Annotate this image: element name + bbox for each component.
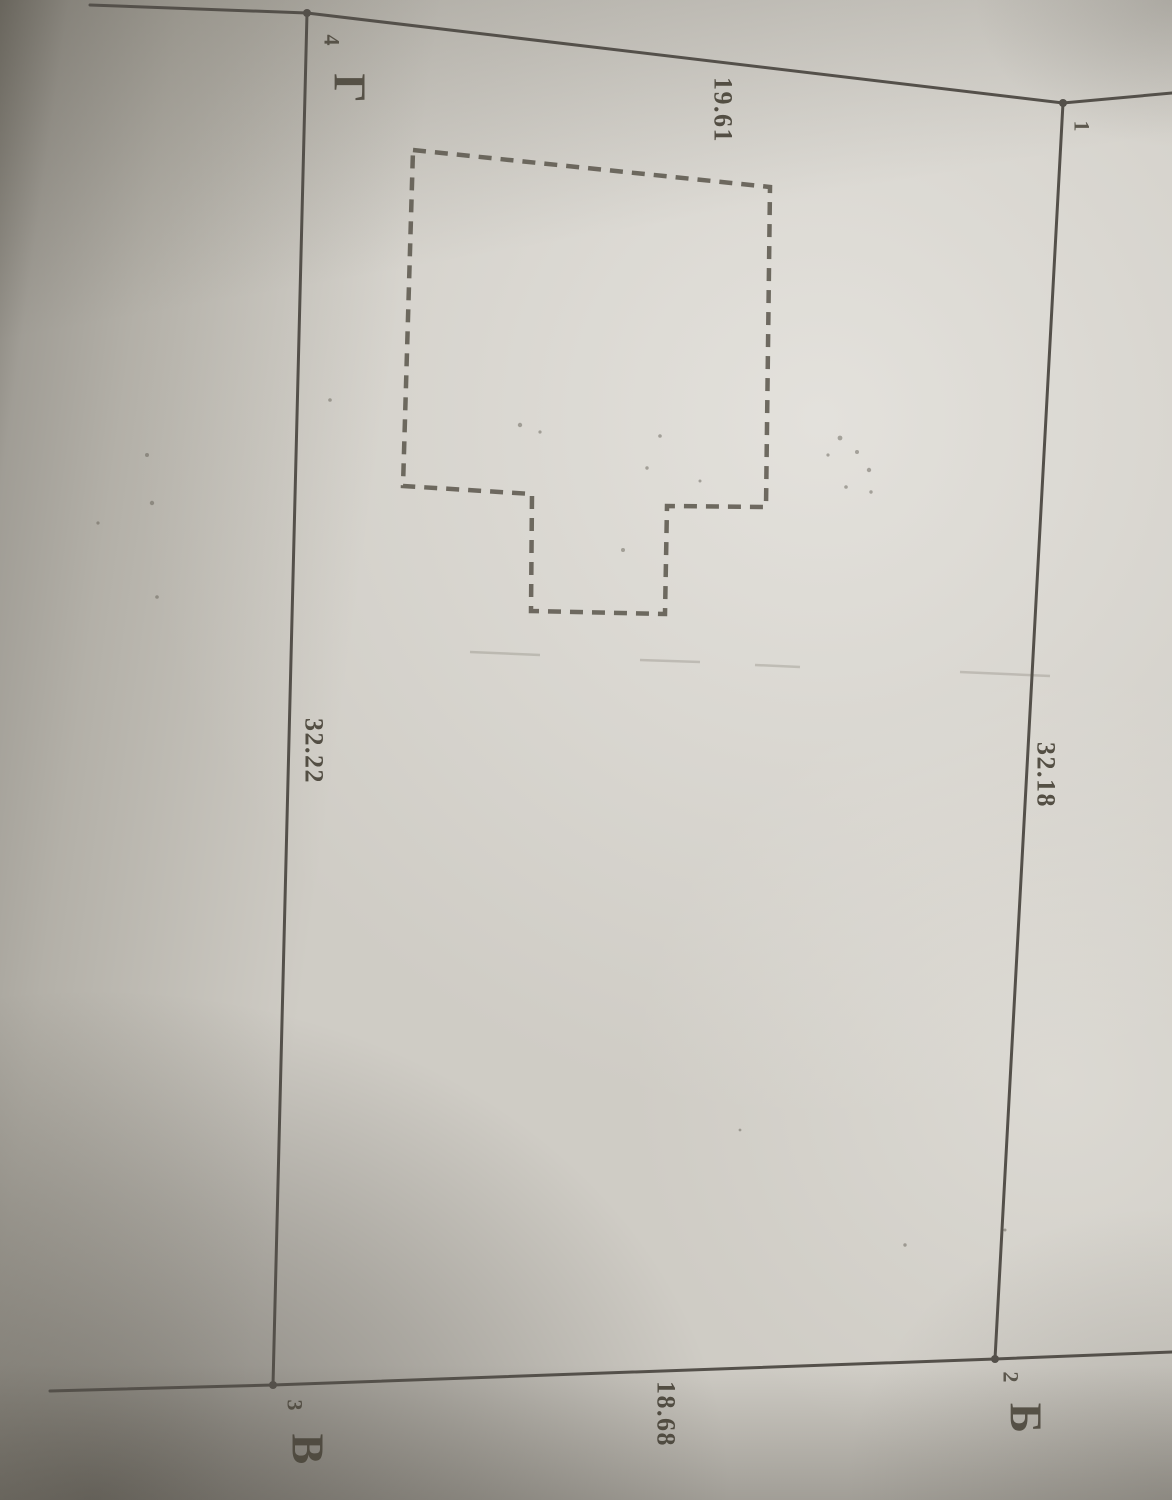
point-number-3: 3 bbox=[283, 1400, 308, 1411]
plot-plan-drawing: 1 2 3 4 Б В Г 19.61 32.18 32.22 18.68 bbox=[0, 0, 1172, 1500]
plan-labels: 1 2 3 4 Б В Г 19.61 32.18 32.22 18.68 bbox=[283, 35, 1095, 1465]
boundary-right-line bbox=[995, 103, 1063, 1359]
paper-crease-marks bbox=[470, 652, 1050, 676]
adjacent-plot-letter-g: Г bbox=[325, 73, 376, 102]
plot-boundary-lines bbox=[50, 5, 1172, 1391]
dimension-left-side: 32.22 bbox=[300, 718, 329, 784]
point-number-1: 1 bbox=[1070, 121, 1095, 132]
corner-point-3-marker bbox=[269, 1381, 277, 1389]
dimension-bottom-side: 18.68 bbox=[652, 1381, 681, 1447]
corner-point-1-marker bbox=[1059, 99, 1067, 107]
adjacent-plot-letter-v: В bbox=[283, 1434, 334, 1465]
point-number-2: 2 bbox=[999, 1372, 1024, 1383]
boundary-left-line bbox=[273, 13, 307, 1385]
building-footprint-dashed-outline bbox=[403, 150, 770, 614]
corner-point-2-marker bbox=[991, 1355, 999, 1363]
adjacent-plot-letter-b: Б bbox=[1001, 1403, 1052, 1433]
paper-specks bbox=[96, 398, 1006, 1247]
corner-point-markers bbox=[269, 9, 1067, 1389]
boundary-top-line bbox=[90, 5, 1172, 103]
point-number-4: 4 bbox=[320, 35, 345, 46]
dimension-top-side: 19.61 bbox=[709, 77, 738, 143]
dimension-right-side: 32.18 bbox=[1032, 742, 1061, 808]
corner-point-4-marker bbox=[303, 9, 311, 17]
photographed-survey-plan-page: 1 2 3 4 Б В Г 19.61 32.18 32.22 18.68 bbox=[0, 0, 1172, 1500]
